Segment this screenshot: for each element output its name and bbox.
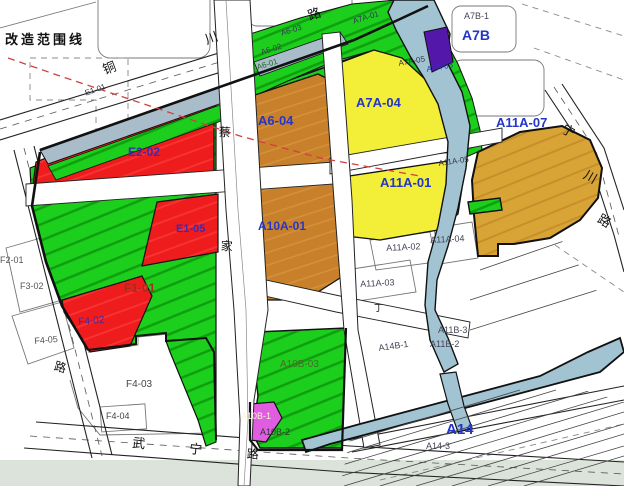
parcel-label-a11a-03: A11A-03	[360, 278, 395, 289]
parcel-label-e2-02: E2-02	[128, 146, 160, 158]
parcel-label-f4-04: F4-04	[106, 412, 130, 421]
parcel-label-a11a-02: A11A-02	[386, 242, 421, 253]
bottom-margin-strip	[0, 460, 624, 486]
parcel-label-a10b-2: A10B-2	[260, 428, 290, 437]
scope-line-label: 改造范围线	[5, 33, 85, 46]
parcel-label-a7b-1: A7B-1	[464, 12, 489, 21]
road-name-wuning-1: 武	[132, 436, 146, 450]
road-name-center-1: 蔡	[218, 126, 231, 139]
parcel-label-a11a-01: A11A-01	[380, 176, 431, 189]
parcel-label-a7a-04: A7A-04	[356, 96, 401, 109]
parcel-label-e1-05: E1-05	[176, 224, 205, 235]
road-name-wuning-2: 宁	[189, 442, 203, 456]
planning-map-canvas	[0, 0, 624, 486]
road-name-minor-1: 丁	[374, 304, 383, 313]
road-name-center-3: 路	[246, 448, 259, 461]
planning-map: 改造范围线 E1-01 E2-02 E1-05 F1-01 F4-02 F3-0…	[0, 0, 624, 486]
parcel-label-f2-01: F2-01	[0, 256, 24, 265]
parcel-label-a11a-04: A11A-04	[430, 234, 465, 245]
parcel-label-a10a-01: A10A-01	[258, 220, 306, 232]
parcel-label-a10b-1: A10B-1	[241, 412, 271, 421]
parcel-label-a11a-07: A11A-07	[496, 116, 547, 129]
parcel-label-a10b-03: A10B-03	[280, 360, 319, 370]
parcel-label-a11b-2: A11B-2	[430, 340, 459, 349]
parcel-label-f4-03: F4-03	[126, 380, 152, 390]
parcel-label-a11b-3: A11B-3	[438, 326, 467, 335]
parcel-label-a6-04: A6-04	[258, 114, 293, 127]
parcel-label-a7b: A7B	[462, 28, 490, 42]
parcel-label-a14-3: A14-3	[426, 442, 450, 451]
road-name-center-2: 家	[220, 240, 233, 253]
parcel-label-f3-02: F3-02	[20, 282, 44, 291]
parcel-label-a14: A14	[446, 422, 474, 437]
parcel-label-f1-01: F1-01	[124, 282, 155, 294]
